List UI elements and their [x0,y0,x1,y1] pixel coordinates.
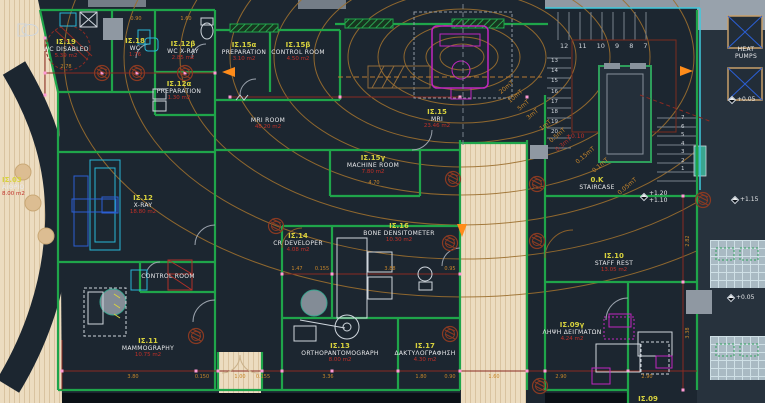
xray-equipment [72,160,120,250]
plan-linework [0,0,765,403]
floorplan-canvas[interactable]: ΙΣ.19 WC DISABLED 5.39 m2 ΙΣ.18 WC 1.76 … [0,0,765,403]
atrium-walkway [8,68,58,386]
point-markers [44,37,685,392]
heat-pump-units [728,16,762,100]
terrace-dashed-units [716,248,758,356]
elevator [599,63,651,162]
door-arcs [136,44,628,322]
